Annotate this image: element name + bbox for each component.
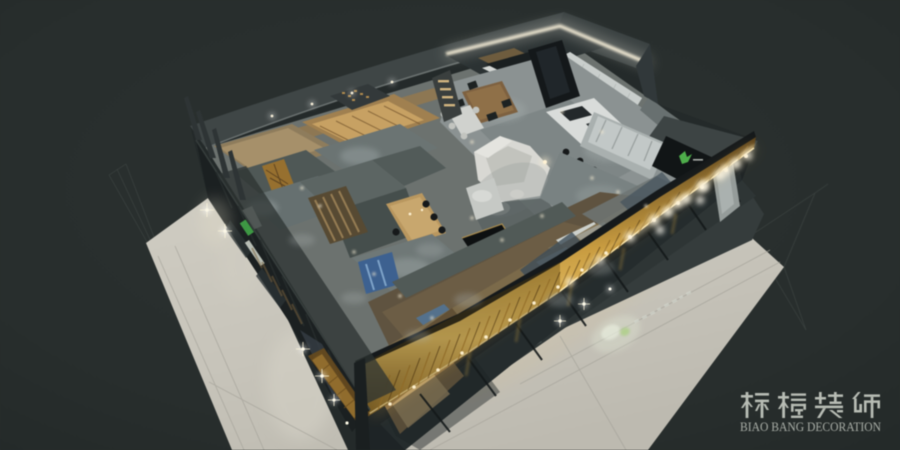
svg-text:BIAO BANG DECORATION: BIAO BANG DECORATION bbox=[740, 419, 882, 434]
